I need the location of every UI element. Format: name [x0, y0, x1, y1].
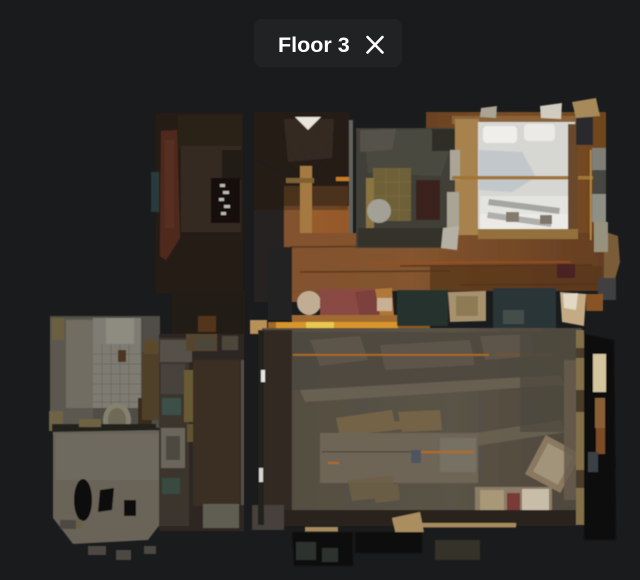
svg-text:Floor 3: Floor 3	[278, 33, 350, 57]
